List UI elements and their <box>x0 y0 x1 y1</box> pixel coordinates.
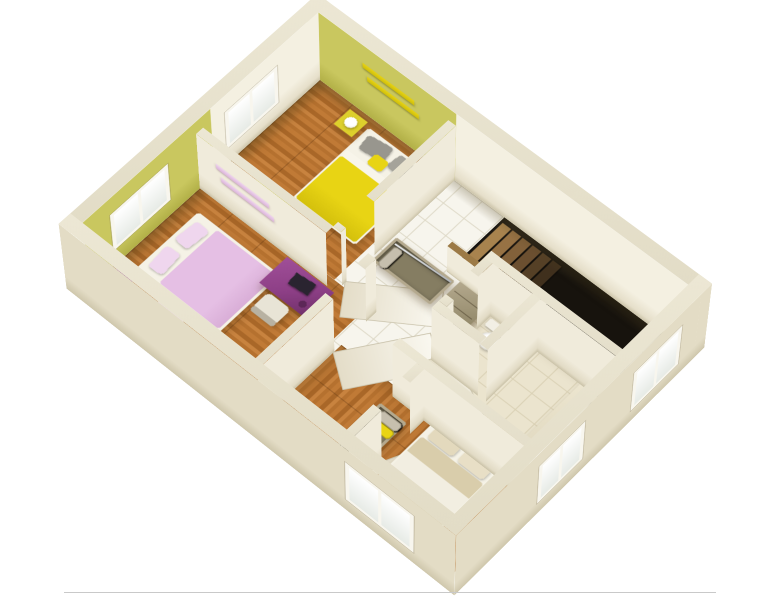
lamp <box>342 115 360 130</box>
floor-plan <box>90 80 681 574</box>
wall-pink-room-face <box>365 259 376 322</box>
scene <box>0 0 780 600</box>
ground-shadow-line <box>64 592 716 593</box>
window-mullion <box>378 490 381 524</box>
window-mullion <box>653 351 659 387</box>
window-mullion <box>138 191 144 224</box>
monitor <box>287 273 316 296</box>
desk-accessory <box>297 299 309 309</box>
window-mullion <box>559 445 564 480</box>
window-mullion <box>250 91 254 124</box>
wall-yellow-room-face <box>341 228 347 286</box>
